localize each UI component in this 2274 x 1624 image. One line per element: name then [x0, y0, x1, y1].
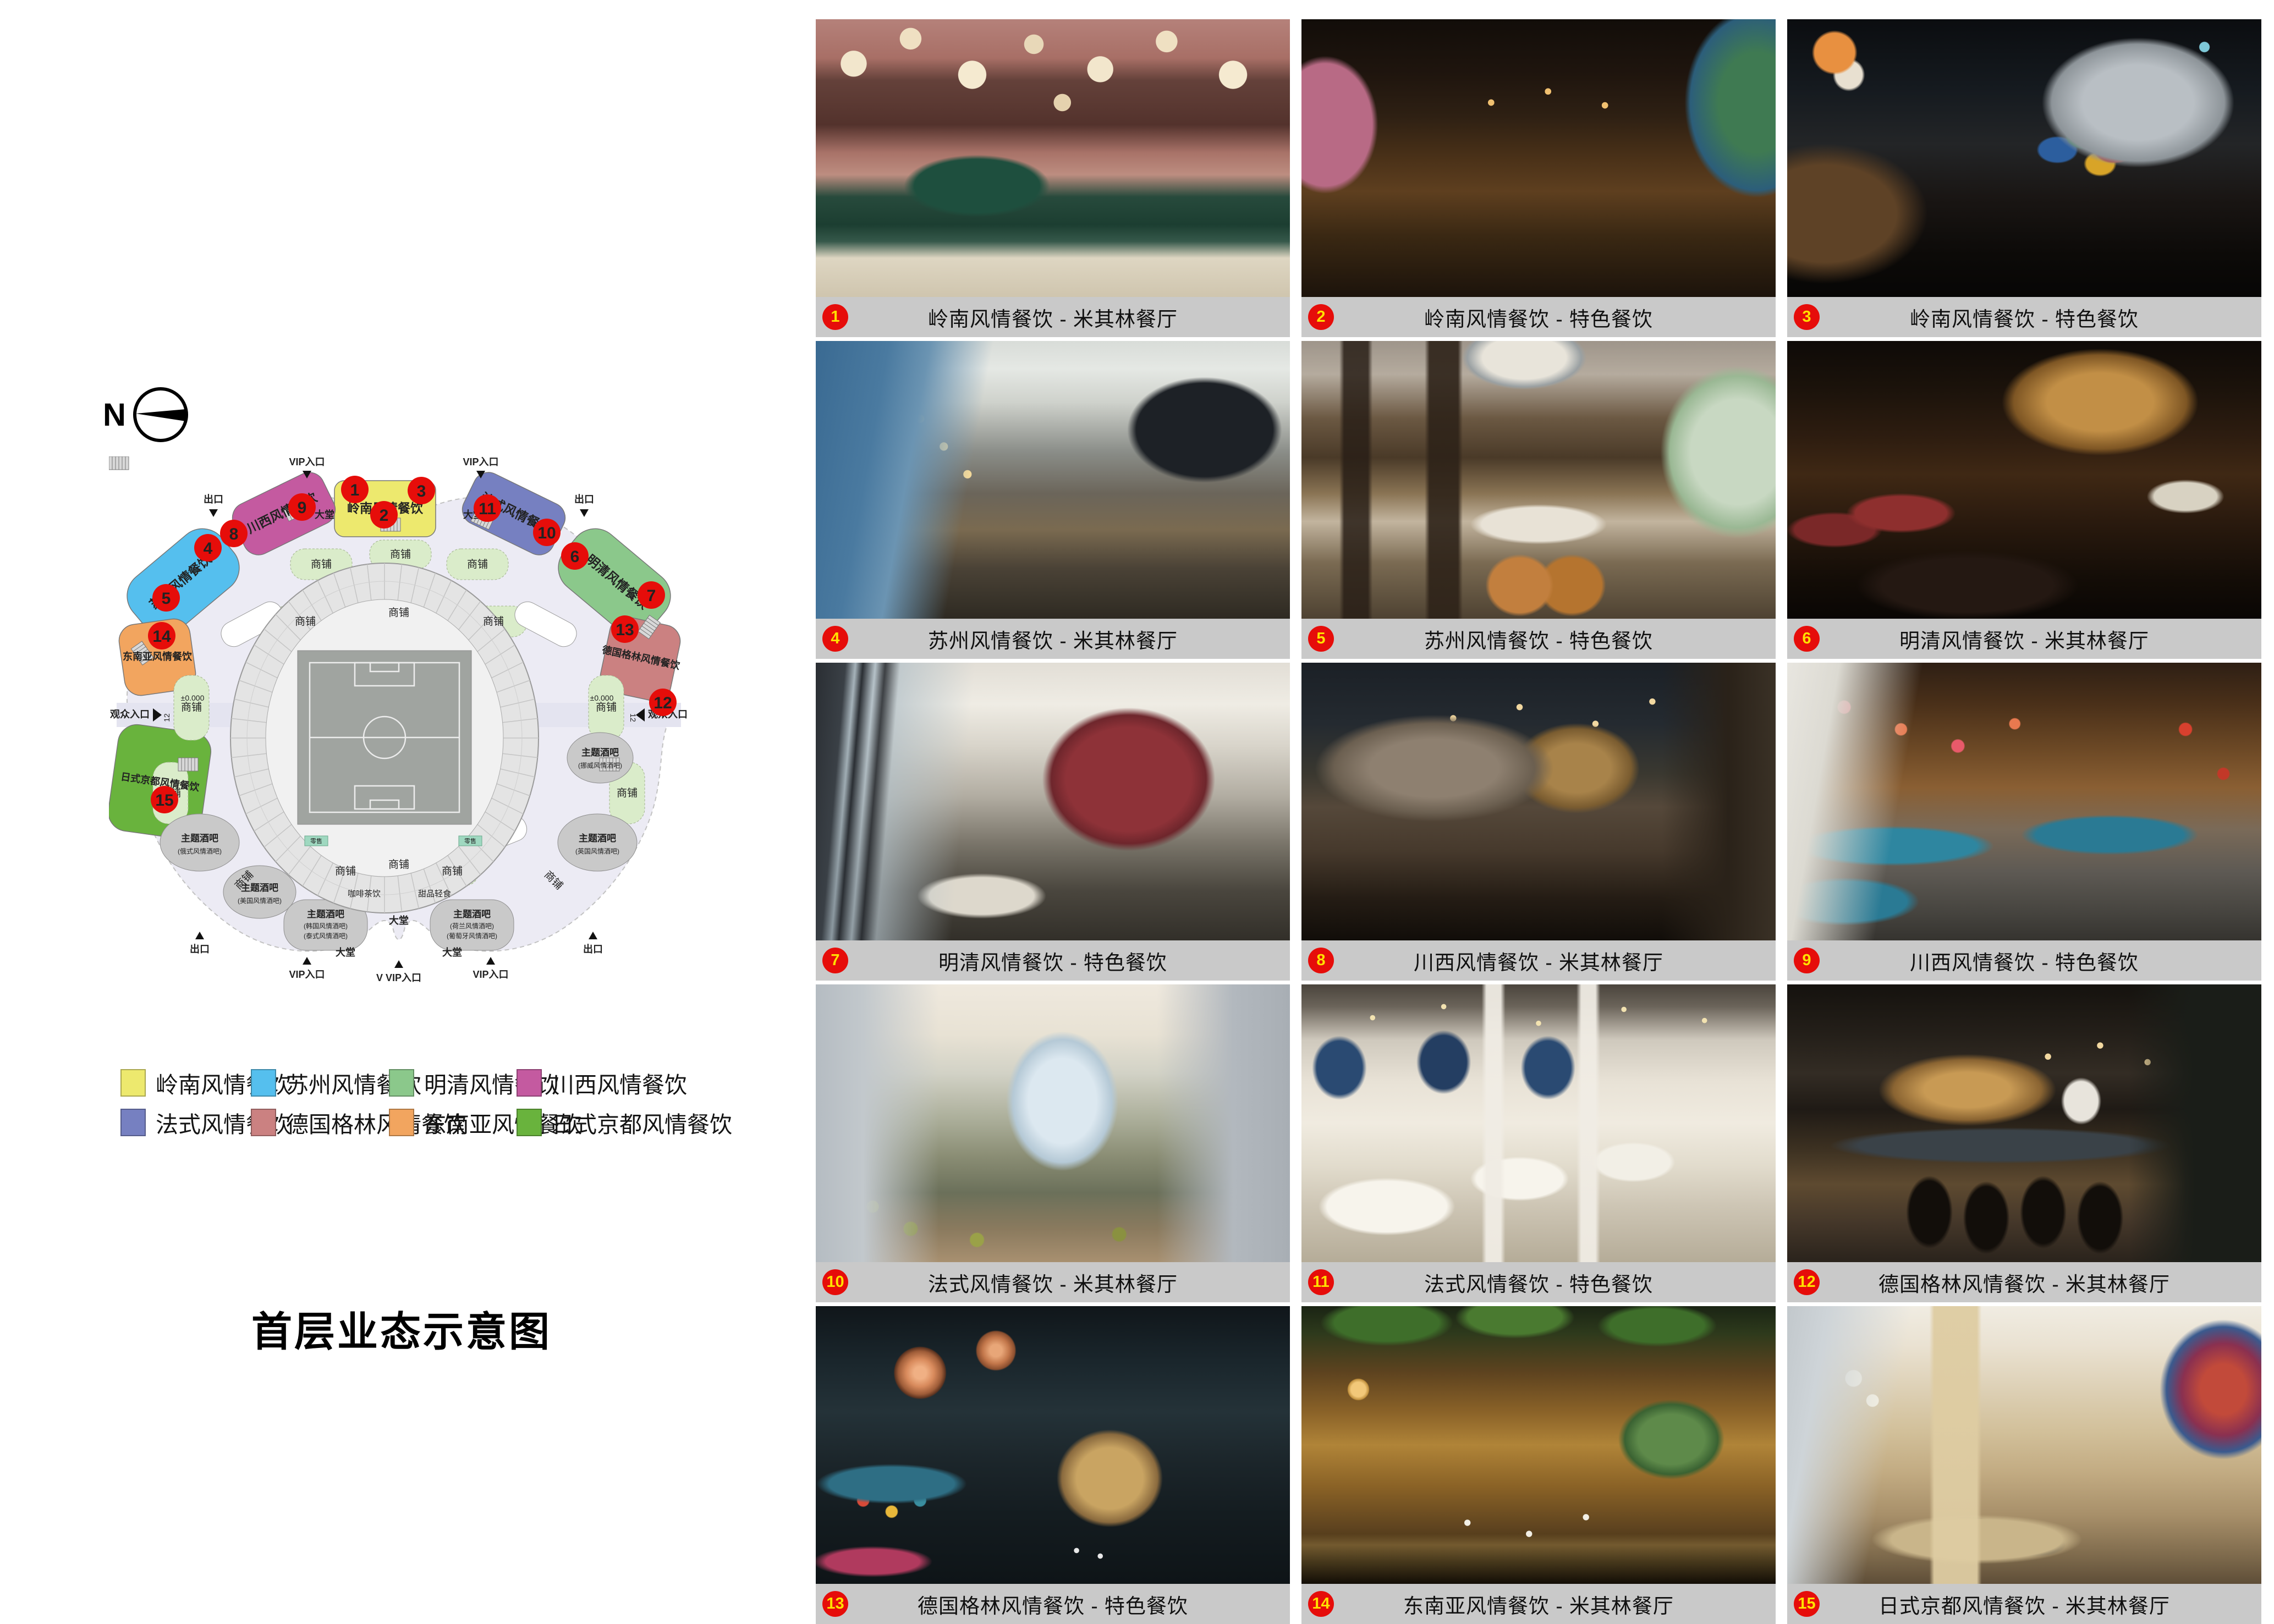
restaurant-photo: [816, 1306, 1290, 1584]
restaurant-photo: [1301, 984, 1776, 1262]
restaurant-photo: [1301, 341, 1776, 619]
svg-text:VIP入口: VIP入口: [289, 456, 325, 467]
svg-text:甜品轻食: 甜品轻食: [418, 889, 451, 899]
restaurant-photo: [816, 984, 1290, 1262]
svg-text:商铺: 商铺: [388, 607, 409, 619]
svg-text:商铺: 商铺: [311, 558, 332, 570]
photo-caption-text: 德国格林风情餐饮 - 米其林餐厅: [1878, 1268, 2170, 1297]
photo-number-badge: 15: [1794, 1591, 1820, 1617]
legend-label: 日式京都风情餐饮: [552, 1106, 732, 1139]
photo-caption-text: 苏州风情餐饮 - 米其林餐厅: [928, 624, 1178, 654]
svg-text:±0.000: ±0.000: [590, 693, 614, 702]
gallery-cell: 3 岭南风情餐饮 - 特色餐饮: [1787, 19, 2261, 337]
arrow-up-icon: [394, 960, 403, 968]
svg-text:商铺: 商铺: [596, 701, 617, 713]
svg-text:15: 15: [155, 791, 173, 810]
photo-number-badge: 13: [822, 1591, 848, 1617]
photo-number-badge: 5: [1308, 626, 1334, 652]
photo-caption: 14 东南亚风情餐饮 - 米其林餐厅: [1301, 1584, 1776, 1624]
photo-caption: 10 法式风情餐饮 - 米其林餐厅: [816, 1262, 1290, 1302]
legend-swatch: [251, 1069, 276, 1097]
photo-caption-text: 岭南风情餐饮 - 特色餐饮: [1910, 302, 2139, 332]
photo-caption-text: 东南亚风情餐饮 - 米其林餐厅: [1403, 1589, 1674, 1619]
photo-caption: 2 岭南风情餐饮 - 特色餐饮: [1301, 297, 1776, 337]
svg-text:主题酒吧: 主题酒吧: [581, 747, 619, 758]
svg-text:(英国风情酒吧): (英国风情酒吧): [575, 847, 619, 855]
legend-swatch: [120, 1109, 146, 1136]
restaurant-photo: [1301, 663, 1776, 940]
gallery-cell: 10 法式风情餐饮 - 米其林餐厅: [816, 984, 1290, 1302]
legend-swatch: [389, 1069, 414, 1097]
svg-text:观众入口: 观众入口: [110, 708, 150, 720]
gallery-cell: 14 东南亚风情餐饮 - 米其林餐厅: [1301, 1306, 1776, 1624]
svg-text:4: 4: [204, 540, 213, 558]
svg-text:(荷兰风情酒吧): (荷兰风情酒吧): [450, 922, 494, 930]
gallery-cell: 5 苏州风情餐饮 - 特色餐饮: [1301, 341, 1776, 659]
svg-text:主题酒吧: 主题酒吧: [307, 909, 344, 920]
photo-caption-text: 明清风情餐饮 - 米其林餐厅: [1899, 624, 2149, 654]
svg-text:(挪威风情酒吧): (挪威风情酒吧): [578, 762, 622, 769]
gallery-cell: 1 岭南风情餐饮 - 米其林餐厅: [816, 19, 1290, 337]
legend-swatch: [120, 1069, 146, 1097]
photo-caption: 9 川西风情餐饮 - 特色餐饮: [1787, 940, 2261, 981]
photo-number-badge: 12: [1794, 1269, 1820, 1295]
floorplan-map: 零售 零售 岭南风情餐饮 川西风情餐饮 法式风情餐饮 苏州风情餐饮 明清风情餐饮…: [109, 456, 689, 990]
restaurant-photo: [816, 341, 1290, 619]
zone-label-dongnanya: 东南亚风情餐饮: [123, 651, 193, 662]
legend-swatch: [517, 1109, 542, 1136]
svg-text:12: 12: [653, 694, 672, 712]
svg-text:商铺: 商铺: [335, 865, 356, 877]
photo-number-badge: 14: [1308, 1591, 1334, 1617]
photo-caption-text: 川西风情餐饮 - 特色餐饮: [1910, 946, 2139, 976]
svg-text:12: 12: [629, 713, 638, 722]
gallery-cell: 11 法式风情餐饮 - 特色餐饮: [1301, 984, 1776, 1302]
gallery-cell: 13 德国格林风情餐饮 - 特色餐饮: [816, 1306, 1290, 1624]
svg-text:大堂: 大堂: [442, 946, 462, 958]
svg-text:(美国风情酒吧): (美国风情酒吧): [238, 897, 282, 905]
photo-number-badge: 4: [822, 626, 848, 652]
photo-number-badge: 10: [822, 1269, 848, 1295]
photo-number-badge: 1: [822, 304, 848, 330]
svg-text:出口: 出口: [574, 493, 594, 505]
svg-text:±0.000: ±0.000: [181, 693, 205, 702]
restaurant-photo: [1787, 984, 2261, 1262]
svg-text:7: 7: [647, 587, 656, 605]
photo-number-badge: 9: [1794, 948, 1820, 973]
photo-caption-text: 法式风情餐饮 - 米其林餐厅: [928, 1268, 1178, 1297]
photo-caption: 12 德国格林风情餐饮 - 米其林餐厅: [1787, 1262, 2261, 1302]
svg-text:咖啡茶饮: 咖啡茶饮: [348, 889, 381, 899]
arrow-up-icon: [589, 932, 597, 939]
svg-text:V VIP入口: V VIP入口: [376, 972, 421, 983]
photo-caption-text: 苏州风情餐饮 - 特色餐饮: [1424, 624, 1653, 654]
gallery-cell: 4 苏州风情餐饮 - 米其林餐厅: [816, 341, 1290, 659]
svg-text:大堂: 大堂: [336, 946, 355, 958]
svg-text:13: 13: [616, 621, 634, 639]
restaurant-photo: [1787, 19, 2261, 297]
svg-text:1: 1: [350, 481, 360, 499]
photo-caption: 5 苏州风情餐饮 - 特色餐饮: [1301, 619, 1776, 659]
photo-caption-text: 川西风情餐饮 - 米其林餐厅: [1414, 946, 1663, 976]
svg-text:商铺: 商铺: [483, 615, 504, 627]
svg-text:5: 5: [162, 590, 171, 608]
svg-text:商铺: 商铺: [295, 615, 316, 627]
svg-text:14: 14: [152, 627, 171, 646]
gallery-cell: 6 明清风情餐饮 - 米其林餐厅: [1787, 341, 2261, 659]
restaurant-photo: [816, 19, 1290, 297]
svg-text:(葡萄牙风情酒吧): (葡萄牙风情酒吧): [447, 932, 497, 940]
football-pitch: [298, 651, 471, 824]
restaurant-photo: [1787, 341, 2261, 619]
svg-text:(俄式风情酒吧): (俄式风情酒吧): [178, 847, 222, 855]
photo-caption: 8 川西风情餐饮 - 米其林餐厅: [1301, 940, 1776, 981]
svg-text:3: 3: [417, 482, 426, 500]
svg-text:商铺: 商铺: [390, 548, 411, 560]
svg-text:2: 2: [380, 507, 389, 525]
svg-text:出口: 出口: [583, 943, 603, 955]
north-compass: N: [102, 384, 201, 445]
photo-caption: 11 法式风情餐饮 - 特色餐饮: [1301, 1262, 1776, 1302]
legend-swatch: [517, 1069, 542, 1097]
svg-text:8: 8: [229, 525, 239, 543]
photo-number-badge: 3: [1794, 304, 1820, 330]
legend-swatch: [389, 1109, 414, 1136]
svg-text:商铺: 商铺: [617, 787, 638, 799]
svg-text:商铺: 商铺: [388, 858, 409, 871]
legend-swatch: [251, 1109, 276, 1136]
arrow-down-icon: [580, 509, 589, 517]
svg-text:(泰式风情酒吧): (泰式风情酒吧): [304, 932, 348, 940]
photo-number-badge: 7: [822, 948, 848, 973]
svg-text:主题酒吧: 主题酒吧: [181, 833, 218, 844]
svg-text:出口: 出口: [190, 943, 210, 955]
arrow-up-icon: [303, 957, 311, 965]
svg-text:零售: 零售: [464, 837, 476, 845]
photo-number-badge: 6: [1794, 626, 1820, 652]
svg-text:商铺: 商铺: [442, 865, 463, 877]
legend-label: 川西风情餐饮: [552, 1066, 687, 1099]
photo-caption-text: 岭南风情餐饮 - 特色餐饮: [1424, 302, 1653, 332]
photo-caption-text: 日式京都风情餐饮 - 米其林餐厅: [1878, 1589, 2170, 1619]
svg-text:大堂: 大堂: [315, 509, 334, 520]
gallery-cell: 9 川西风情餐饮 - 特色餐饮: [1787, 663, 2261, 981]
photo-caption: 15 日式京都风情餐饮 - 米其林餐厅: [1787, 1584, 2261, 1624]
svg-text:12: 12: [162, 713, 171, 722]
restaurant-photo: [1787, 1306, 2261, 1584]
gallery-cell: 7 明清风情餐饮 - 特色餐饮: [816, 663, 1290, 981]
gallery-cell: 8 川西风情餐饮 - 米其林餐厅: [1301, 663, 1776, 981]
svg-text:VIP入口: VIP入口: [463, 456, 498, 467]
photo-caption: 13 德国格林风情餐饮 - 特色餐饮: [816, 1584, 1290, 1624]
svg-text:VIP入口: VIP入口: [473, 969, 508, 980]
svg-text:商铺: 商铺: [181, 701, 202, 713]
svg-text:主题酒吧: 主题酒吧: [241, 882, 278, 893]
restaurant-photo: [816, 663, 1290, 940]
svg-text:商铺: 商铺: [467, 558, 488, 570]
arrow-up-icon: [486, 957, 495, 965]
svg-text:10: 10: [537, 524, 556, 542]
legend-item: 日式京都风情餐饮: [517, 1108, 732, 1137]
svg-text:VIP入口: VIP入口: [289, 969, 325, 980]
photo-caption: 3 岭南风情餐饮 - 特色餐饮: [1787, 297, 2261, 337]
svg-text:出口: 出口: [204, 493, 223, 505]
svg-text:11: 11: [479, 500, 496, 518]
photo-caption: 4 苏州风情餐饮 - 米其林餐厅: [816, 619, 1290, 659]
photo-caption: 7 明清风情餐饮 - 特色餐饮: [816, 940, 1290, 981]
restaurant-photo: [1301, 19, 1776, 297]
restaurant-photo: [1787, 663, 2261, 940]
photo-number-badge: 2: [1308, 304, 1334, 330]
svg-text:6: 6: [570, 548, 580, 566]
photo-caption: 6 明清风情餐饮 - 米其林餐厅: [1787, 619, 2261, 659]
gallery-cell: 12 德国格林风情餐饮 - 米其林餐厅: [1787, 984, 2261, 1302]
arrow-up-icon: [195, 932, 204, 939]
svg-text:大堂: 大堂: [389, 915, 409, 926]
gallery-cell: 15 日式京都风情餐饮 - 米其林餐厅: [1787, 1306, 2261, 1624]
north-letter: N: [103, 397, 126, 433]
page-title: 首层业态示意图: [237, 1299, 567, 1358]
svg-text:主题酒吧: 主题酒吧: [579, 833, 616, 844]
svg-text:主题酒吧: 主题酒吧: [453, 909, 491, 920]
svg-text:零售: 零售: [310, 837, 322, 845]
arrow-down-icon: [209, 509, 218, 517]
photo-number-badge: 8: [1308, 948, 1334, 973]
photo-caption-text: 法式风情餐饮 - 特色餐饮: [1424, 1268, 1653, 1297]
legend-item: 川西风情餐饮: [517, 1068, 687, 1098]
photo-caption-text: 德国格林风情餐饮 - 特色餐饮: [918, 1589, 1188, 1619]
photo-caption-text: 岭南风情餐饮 - 米其林餐厅: [928, 302, 1178, 332]
svg-text:9: 9: [298, 499, 307, 517]
photo-caption: 1 岭南风情餐饮 - 米其林餐厅: [816, 297, 1290, 337]
photo-caption-text: 明清风情餐饮 - 特色餐饮: [938, 946, 1167, 976]
restaurant-photo: [1301, 1306, 1776, 1584]
svg-text:(韩国风情酒吧): (韩国风情酒吧): [304, 922, 348, 930]
presentation-sheet: N: [0, 0, 2274, 1624]
gallery-cell: 2 岭南风情餐饮 - 特色餐饮: [1301, 19, 1776, 337]
photo-number-badge: 11: [1308, 1269, 1334, 1295]
